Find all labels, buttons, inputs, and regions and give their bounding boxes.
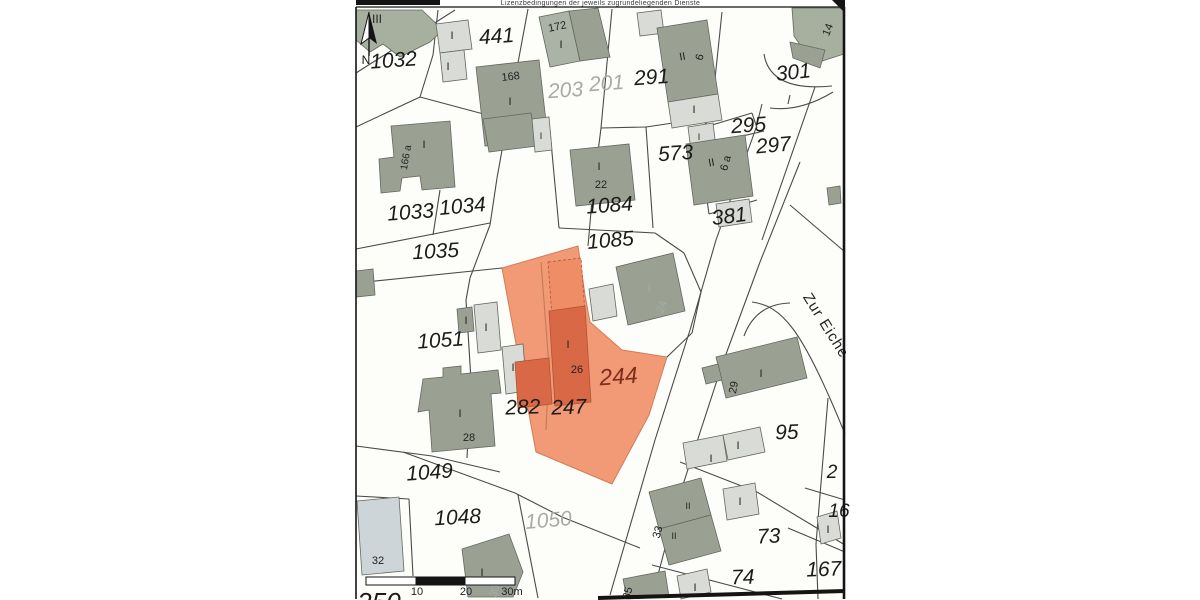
building-label: I (597, 161, 600, 173)
parcel-number-label: 16 (828, 501, 850, 522)
building-label: I (647, 283, 650, 295)
parcel-number-label: 1034 (438, 193, 487, 220)
scanned-cadastral-map-page: Lizenzbedingungen der jeweils zugrundeli… (0, 0, 1200, 600)
building-label: I (692, 104, 695, 116)
parcel-number-label: 1032 (369, 47, 418, 73)
cadastral-map: 1032441203201291301295297103310341084573… (0, 0, 1200, 600)
building-footprint (483, 113, 537, 152)
parcel-number-label: 201 (587, 71, 625, 96)
building-label: I (464, 315, 467, 327)
parcel-number-label: 250 (356, 587, 401, 600)
parcel-number-label: 1084 (585, 192, 633, 218)
parcel-number-label: 247 (550, 395, 588, 419)
parcel-number-label: 203 (546, 78, 584, 103)
parcel-number-label: 573 (657, 141, 694, 166)
building-footprint (549, 306, 591, 406)
building-label: I (559, 39, 562, 51)
scale-bar-tick-label: 10 (411, 586, 423, 598)
parcel-number-label: 1051 (416, 327, 464, 353)
building-label: I (759, 368, 762, 380)
building-label: I (508, 96, 511, 108)
parcel-number-label: 1048 (434, 505, 482, 530)
parcel-number-label: 74 (731, 566, 755, 590)
parcel-number-label: 441 (478, 24, 515, 49)
building-label: I (738, 496, 741, 508)
building-label: I (826, 524, 829, 536)
building-label: 32 (372, 555, 384, 567)
building-label: 26 (571, 364, 583, 376)
parcel-number-label: 95 (775, 421, 799, 445)
building-footprint (657, 20, 718, 102)
parcel-number-label: 1035 (412, 239, 460, 264)
north-label: N (362, 53, 371, 67)
building-label: III (372, 12, 382, 26)
parcel-number-label: 167 (806, 557, 843, 581)
parcel-number-label: 2 (826, 462, 838, 483)
parcel-number-label: 381 (710, 203, 748, 230)
building-label: I (446, 61, 449, 73)
scale-bar-tick-label: 20 (460, 586, 472, 598)
building-footprint (356, 269, 375, 297)
building-footprint (702, 364, 722, 384)
parcel-number-label: 1085 (586, 227, 635, 254)
building-label: I (731, 207, 734, 219)
building-label: I (709, 453, 712, 465)
scale-bar-segment (366, 577, 416, 585)
parcel-number-label: 282 (504, 395, 541, 419)
building-label: 168 (501, 70, 521, 84)
building-label: II (671, 531, 676, 541)
scale-bar-segment (465, 577, 515, 585)
building-label: I (458, 408, 461, 420)
building-footprint (589, 284, 617, 321)
parcel-number-label: 1050 (524, 507, 573, 534)
parcel-number-label: 73 (756, 524, 781, 548)
parcel-number-label: 1033 (386, 199, 435, 225)
building-label: 22 (595, 179, 607, 191)
building-label: I (693, 582, 696, 594)
building-label: I (511, 362, 514, 374)
building-label: II (685, 501, 690, 511)
building-label: I (566, 339, 569, 351)
building-label: I (484, 322, 487, 334)
parcel-number-label: 244 (597, 362, 638, 391)
building-label: 29 (727, 380, 741, 394)
building-label: I (540, 131, 543, 141)
building-label: I (698, 132, 701, 142)
scale-bar-tick-label: 30m (501, 586, 522, 598)
building-label: I (450, 30, 453, 42)
parcel-number-label: 301 (775, 59, 812, 86)
scan-top-bar (356, 0, 440, 5)
building-footprint (440, 50, 467, 82)
building-footprint (827, 186, 841, 205)
parcel-number-label: 291 (632, 65, 670, 90)
parcel-number-label: 297 (754, 132, 793, 158)
building-footprint (436, 20, 472, 53)
scale-bar-segment (416, 577, 465, 585)
building-label: I (736, 440, 739, 452)
building-label: I (422, 139, 425, 151)
parcel-number-label: 1049 (405, 459, 454, 485)
building-label: 28 (463, 432, 475, 444)
